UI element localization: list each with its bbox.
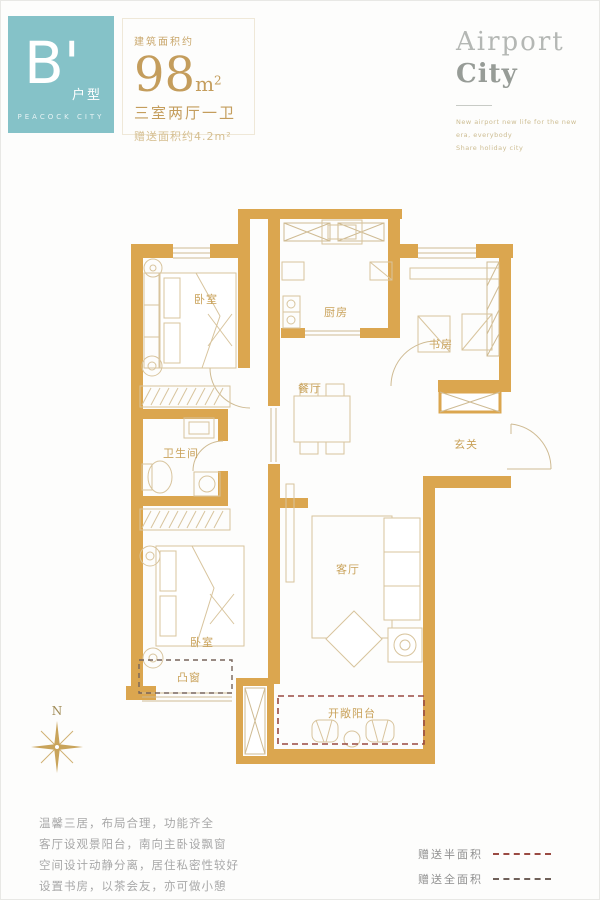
legend-row-half-area: 赠送半面积: [418, 846, 551, 862]
brand-tagline-1: New airport new life for the new era, ev…: [456, 116, 591, 142]
room-label-hallway: 玄关: [454, 437, 478, 451]
room-label-bay-window: 凸窗: [177, 670, 201, 684]
room-label-kitchen: 厨房: [324, 306, 348, 319]
balcony-furniture: [312, 720, 394, 747]
compass-north-label: N: [52, 704, 63, 718]
layout-text: 三室两厅一卫: [134, 102, 254, 123]
area-unit: m: [195, 72, 214, 96]
room-label-living: 客厅: [336, 562, 360, 576]
brand-name-line2: City: [456, 59, 591, 89]
floor-plan: 卧室 厨房 书房 餐厅 卫生间 玄关 卧室 客厅 凸窗 开敞阳台: [126, 196, 561, 771]
legend-dash-half-area: [493, 853, 551, 855]
legend-row-full-area: 赠送全面积: [418, 871, 551, 887]
bedroom2-furniture: [140, 546, 244, 668]
description-line: 空间设计动静分离，居住私密性较好: [39, 855, 239, 876]
unit-type-label: 户型: [72, 84, 102, 103]
brand-divider: [456, 105, 492, 106]
description-line: 设置书房，以茶会友，亦可做小憩: [39, 876, 239, 897]
study-furniture: [410, 268, 499, 352]
room-label-dining: 餐厅: [298, 381, 322, 395]
description-block: 温馨三居，布局合理，功能齐全 客厅设观景阳台，南向主卧设飘窗 空间设计动静分离，…: [39, 813, 239, 897]
description-line: 温馨三居，布局合理，功能齐全: [39, 813, 239, 834]
room-label-balcony: 开敞阳台: [328, 706, 376, 720]
description-line: 客厅设观景阳台，南向主卧设飘窗: [39, 834, 239, 855]
legend-label-full-area: 赠送全面积: [418, 871, 483, 887]
unit-badge-subtitle: PEACOCK CITY: [8, 113, 114, 121]
room-label-bedroom1: 卧室: [194, 292, 218, 306]
gift-area-legend: 赠送半面积 赠送全面积: [418, 846, 551, 896]
legend-label-half-area: 赠送半面积: [418, 846, 483, 862]
room-label-study: 书房: [429, 338, 453, 351]
bonus-area-text: 赠送面积约4.2m²: [134, 128, 254, 144]
brochure-page: B' 户型 PEACOCK CITY 建筑面积约 98m2 三室两厅一卫 赠送面…: [0, 0, 600, 900]
area-value: 98: [134, 47, 195, 103]
balcony-outline: [278, 696, 424, 744]
area-prefix: 建筑面积约: [134, 33, 254, 48]
area-unit-sup: 2: [214, 74, 222, 88]
room-label-bedroom2: 卧室: [190, 635, 214, 649]
bedroom1-furniture: [142, 259, 236, 376]
brand-name-line1: Airport: [456, 27, 591, 57]
room-label-bathroom: 卫生间: [163, 446, 199, 460]
area-value-row: 98m2: [134, 50, 254, 100]
unit-badge: B' 户型 PEACOCK CITY: [8, 16, 114, 133]
brand-tagline-2: Share holiday city: [456, 142, 591, 155]
legend-dash-full-area: [493, 878, 551, 880]
elevator-shaft: [243, 686, 267, 756]
area-info-card: 建筑面积约 98m2 三室两厅一卫 赠送面积约4.2m²: [122, 18, 255, 135]
brand-block: Airport City New airport new life for th…: [456, 27, 591, 155]
compass: N: [23, 699, 93, 779]
duct-shaft-study: [440, 392, 500, 412]
compass-star-icon: [31, 721, 83, 773]
